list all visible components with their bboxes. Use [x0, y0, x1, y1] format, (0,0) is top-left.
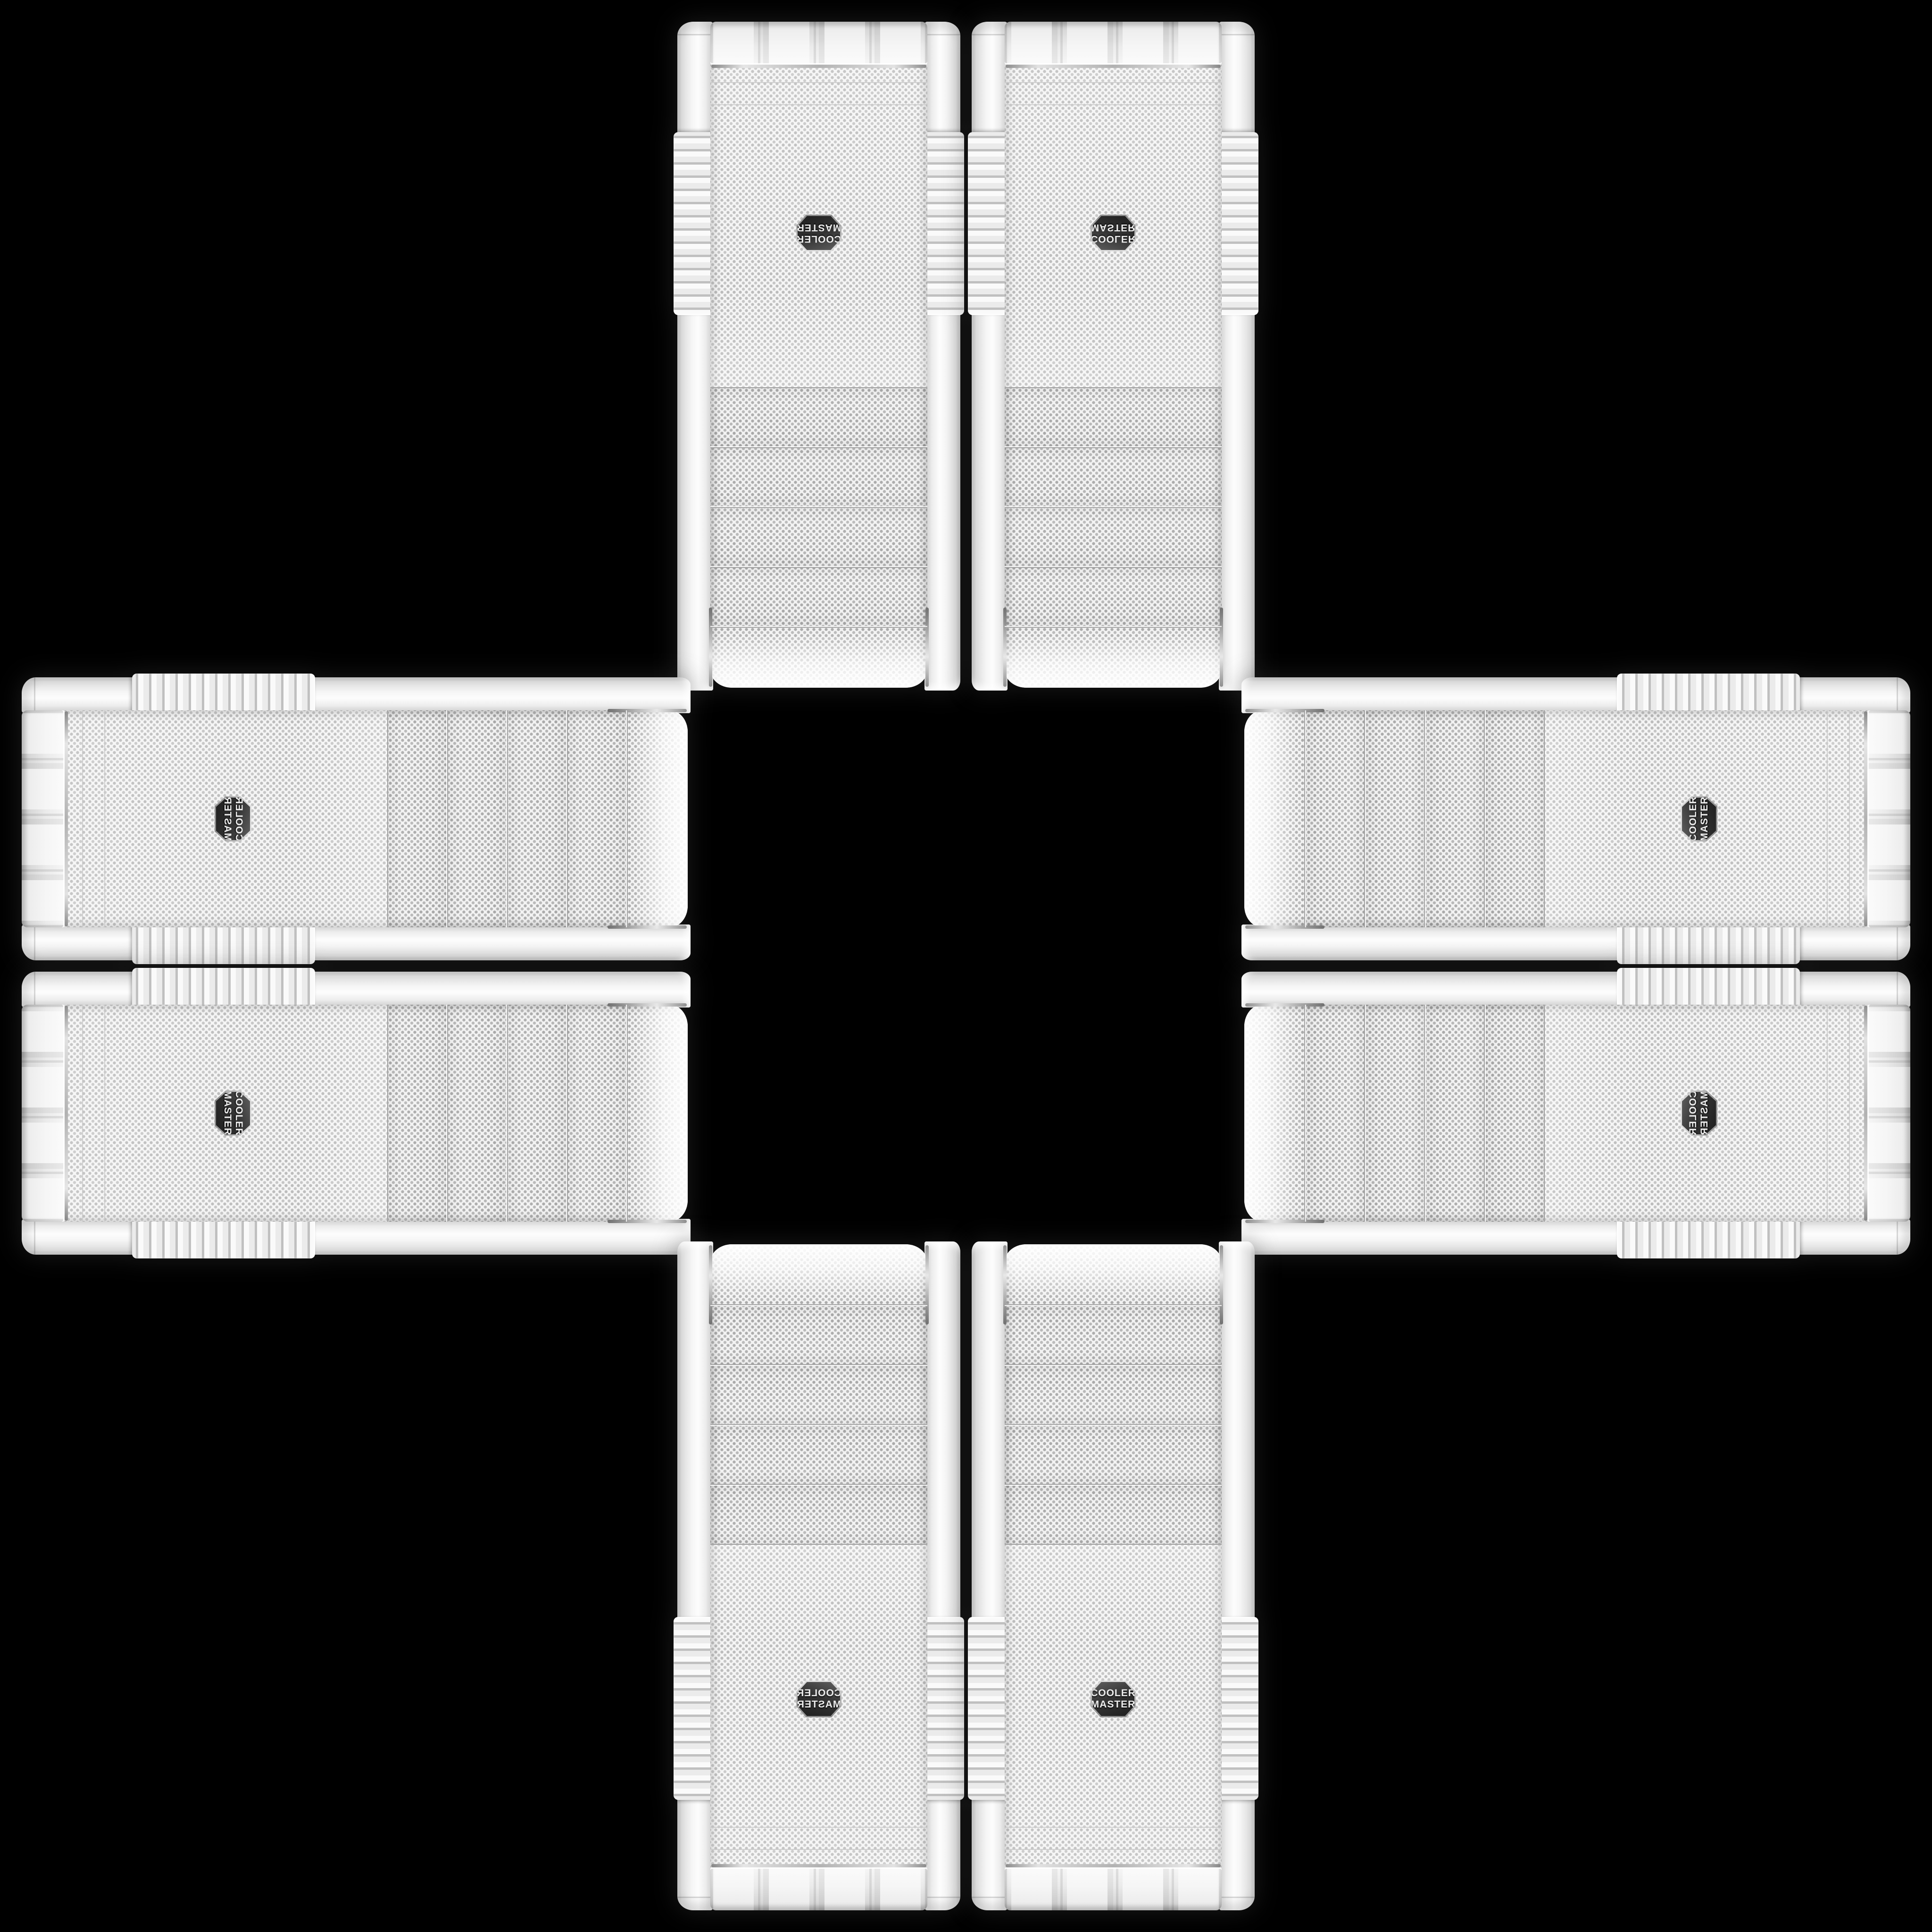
case-left-bottom: COOLER MASTER [22, 972, 693, 1255]
drive-bay-cover-2 [508, 1005, 568, 1222]
front-top-curve [627, 1005, 688, 1222]
drive-bay-cover-4 [1005, 1484, 1222, 1544]
logo-text-line2: MASTER [222, 1091, 233, 1136]
panel-seam [1827, 1005, 1828, 1222]
cooler-master-badge-face: COOLER MASTER [216, 798, 250, 840]
drive-bay-cover-1 [568, 1005, 628, 1222]
front-top-curve [710, 627, 927, 688]
side-panel-right [22, 1219, 691, 1255]
front-mesh-panel: COOLER MASTER [65, 1005, 688, 1222]
panel-seam [1849, 1005, 1850, 1222]
logo-text-line2: MASTER [1699, 797, 1710, 841]
front-top-curve [710, 1244, 927, 1305]
case-top-right: COOLER MASTER [972, 22, 1255, 693]
cooler-master-badge-face: COOLER MASTER [1682, 798, 1716, 840]
grip-ribs-left [132, 923, 315, 964]
drive-bay-cover-1 [1304, 710, 1364, 927]
logo-text-line2: MASTER [1091, 222, 1136, 233]
cooler-master-badge: COOLER MASTER [215, 796, 251, 841]
panel-seam [710, 1827, 927, 1828]
cooler-master-badge: COOLER MASTER [215, 1091, 251, 1136]
front-mesh-panel: COOLER MASTER [710, 1244, 927, 1867]
drive-bay-cover-2 [1005, 1364, 1222, 1424]
logo-text-line1: COOLER [1091, 233, 1136, 244]
side-panel-left [1241, 972, 1910, 1008]
panel-seam [104, 710, 105, 927]
mesh-lower-panel: COOLER MASTER [1544, 710, 1868, 927]
panel-seam [104, 1005, 105, 1222]
drive-bay-cover-2 [710, 1364, 927, 1424]
side-panel-right [677, 22, 713, 691]
logo-text-line2: MASTER [797, 1699, 841, 1710]
mesh-lower-panel: COOLER MASTER [710, 1544, 927, 1868]
grip-ribs-right [1217, 132, 1258, 315]
bottom-cap [1005, 1867, 1222, 1910]
case-right-bottom: COOLER MASTER [1239, 972, 1910, 1255]
front-mesh-panel: COOLER MASTER [1244, 1005, 1867, 1222]
logo-text-line1: COOLER [796, 233, 841, 244]
cooler-master-badge-face: COOLER MASTER [798, 1682, 840, 1716]
grip-ribs-right [1217, 1617, 1258, 1800]
panel-seam [1849, 710, 1850, 927]
grip-ribs-left [968, 132, 1009, 315]
drive-bay-cover-4 [710, 1484, 927, 1544]
drive-bay-cover-1 [1005, 1304, 1222, 1364]
drive-bay-cover-3 [1005, 1424, 1222, 1484]
drive-bay-cover-3 [448, 710, 508, 927]
side-panel-right [1241, 1219, 1910, 1255]
panel-seam [1827, 710, 1828, 927]
drive-bay-cover-4 [388, 710, 448, 927]
cooler-master-badge-face: COOLER MASTER [216, 1092, 250, 1134]
panel-seam [710, 104, 927, 105]
drive-bay-cover-1 [1005, 568, 1222, 628]
drive-bay-cover-3 [710, 448, 927, 508]
cooler-master-badge: COOLER MASTER [1091, 1681, 1136, 1717]
mesh-lower-panel: COOLER MASTER [64, 710, 388, 927]
logo-text-line1: COOLER [233, 796, 244, 841]
grip-ribs-left [132, 968, 315, 1009]
drive-bay-cover-3 [1424, 710, 1484, 927]
bottom-cap [22, 710, 65, 927]
drive-bay-cover-1 [568, 710, 628, 927]
front-top-curve [1005, 627, 1222, 688]
side-panel-left [924, 1241, 960, 1910]
bottom-cap [710, 1867, 927, 1910]
logo-text-line1: COOLER [796, 1688, 841, 1699]
grip-ribs-right [674, 1617, 715, 1800]
logo-text-line1: COOLER [1688, 796, 1699, 841]
drive-bay-cover-3 [1424, 1005, 1484, 1222]
panel-seam [82, 710, 83, 927]
logo-text-line2: MASTER [1699, 1091, 1710, 1136]
mesh-lower-panel: COOLER MASTER [710, 64, 927, 388]
drive-bay-cover-4 [710, 388, 927, 448]
side-panel-left [1241, 924, 1910, 960]
side-panel-left [972, 22, 1008, 691]
grip-ribs-left [923, 132, 964, 315]
drive-bay-cover-2 [710, 508, 927, 568]
side-panel-right [677, 1241, 713, 1910]
front-top-curve [1244, 1005, 1305, 1222]
logo-text-line1: COOLER [1091, 1688, 1136, 1699]
front-mesh-panel: COOLER MASTER [1005, 1244, 1222, 1867]
side-panel-left [972, 1241, 1008, 1910]
drive-bay-cover-4 [1484, 710, 1544, 927]
bottom-cap [1867, 710, 1910, 927]
mesh-lower-panel: COOLER MASTER [1005, 64, 1222, 388]
side-panel-right [22, 677, 691, 713]
bottom-cap [710, 22, 927, 65]
case-top-left: COOLER MASTER [677, 22, 960, 693]
side-panel-left [924, 22, 960, 691]
mesh-lower-panel: COOLER MASTER [1544, 1005, 1868, 1222]
side-panel-right [1219, 1241, 1255, 1910]
cooler-master-badge: COOLER MASTER [796, 1681, 841, 1717]
grip-ribs-left [923, 1617, 964, 1800]
cooler-master-badge-face: COOLER MASTER [1682, 1092, 1716, 1134]
panel-seam [1005, 1849, 1222, 1850]
logo-text-line1: COOLER [1688, 1091, 1699, 1136]
panel-seam [1005, 1827, 1222, 1828]
panel-seam [710, 82, 927, 83]
drive-bay-cover-2 [1364, 1005, 1424, 1222]
cooler-master-badge-face: COOLER MASTER [798, 216, 840, 250]
cooler-master-badge: COOLER MASTER [796, 215, 841, 251]
logo-text-line2: MASTER [1091, 1699, 1136, 1710]
drive-bay-cover-1 [1304, 1005, 1364, 1222]
case-bottom-left: COOLER MASTER [677, 1239, 960, 1910]
drive-bay-cover-2 [1364, 710, 1424, 927]
product-collage-stage: COOLER MASTER [0, 0, 1932, 1932]
bottom-cap [22, 1005, 65, 1222]
grip-ribs-right [1617, 1217, 1800, 1258]
drive-bay-cover-2 [1005, 508, 1222, 568]
drive-bay-cover-4 [1005, 388, 1222, 448]
drive-bay-cover-3 [448, 1005, 508, 1222]
panel-seam [1005, 82, 1222, 83]
side-panel-right [1219, 22, 1255, 691]
logo-text-line2: MASTER [797, 222, 841, 233]
mesh-lower-panel: COOLER MASTER [64, 1005, 388, 1222]
drive-bay-cover-3 [710, 1424, 927, 1484]
drive-bay-cover-2 [508, 710, 568, 927]
cooler-master-badge: COOLER MASTER [1091, 215, 1136, 251]
front-top-curve [1244, 710, 1305, 927]
drive-bay-cover-3 [1005, 448, 1222, 508]
drive-bay-cover-4 [1484, 1005, 1544, 1222]
cooler-master-badge: COOLER MASTER [1681, 796, 1717, 841]
logo-text-line2: MASTER [222, 797, 233, 841]
case-right-top: COOLER MASTER [1239, 677, 1910, 960]
panel-seam [710, 1849, 927, 1850]
drive-bay-cover-4 [388, 1005, 448, 1222]
grip-ribs-right [132, 1217, 315, 1258]
front-mesh-panel: COOLER MASTER [710, 65, 927, 688]
case-bottom-right: COOLER MASTER [972, 1239, 1255, 1910]
front-top-curve [627, 710, 688, 927]
cooler-master-badge-face: COOLER MASTER [1092, 1682, 1134, 1716]
grip-ribs-right [132, 674, 315, 715]
grip-ribs-left [1617, 968, 1800, 1009]
grip-ribs-left [1617, 923, 1800, 964]
grip-ribs-left [968, 1617, 1009, 1800]
panel-seam [1005, 104, 1222, 105]
front-mesh-panel: COOLER MASTER [1244, 710, 1867, 927]
case-left-top: COOLER MASTER [22, 677, 693, 960]
side-panel-left [22, 972, 691, 1008]
mesh-lower-panel: COOLER MASTER [1005, 1544, 1222, 1868]
bottom-cap [1005, 22, 1222, 65]
panel-seam [82, 1005, 83, 1222]
front-mesh-panel: COOLER MASTER [65, 710, 688, 927]
front-top-curve [1005, 1244, 1222, 1305]
front-mesh-panel: COOLER MASTER [1005, 65, 1222, 688]
drive-bay-cover-1 [710, 568, 927, 628]
drive-bay-cover-1 [710, 1304, 927, 1364]
cooler-master-badge: COOLER MASTER [1681, 1091, 1717, 1136]
logo-text-line1: COOLER [233, 1091, 244, 1136]
grip-ribs-right [1617, 674, 1800, 715]
side-panel-left [22, 924, 691, 960]
bottom-cap [1867, 1005, 1910, 1222]
grip-ribs-right [674, 132, 715, 315]
side-panel-right [1241, 677, 1910, 713]
cooler-master-badge-face: COOLER MASTER [1092, 216, 1134, 250]
